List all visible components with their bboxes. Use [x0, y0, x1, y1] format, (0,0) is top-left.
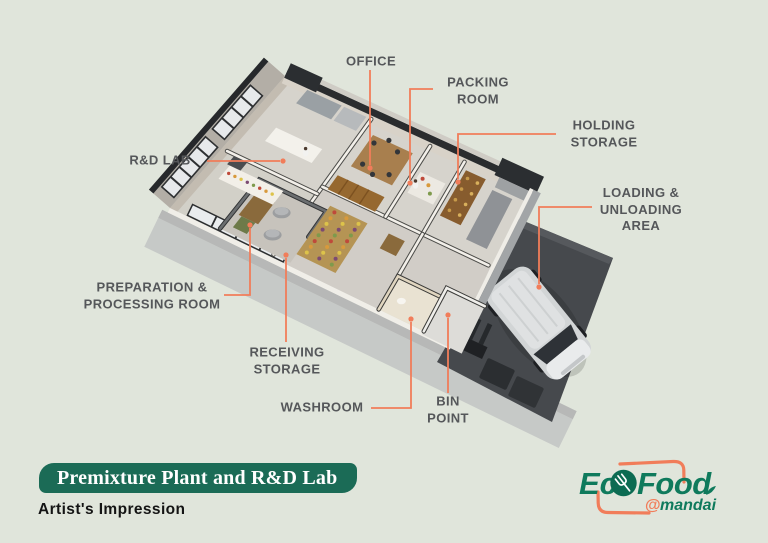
logo-at-symbol: @: [645, 497, 661, 514]
artists-impression-note: Artist's Impression: [38, 501, 185, 519]
page-title: Premixture Plant and R&D Lab: [57, 467, 337, 489]
leaf-fork-icon: [610, 470, 636, 496]
logo-location: mandai: [660, 497, 717, 514]
logo-text-suffix: Food: [637, 466, 712, 501]
ecofood-mandai-logo: Ec Food @ mandai: [575, 450, 751, 528]
poster: OFFICEPACKINGROOMHOLDINGSTORAGELOADING &…: [0, 0, 768, 543]
title-banner: Premixture Plant and R&D Lab: [39, 463, 357, 493]
